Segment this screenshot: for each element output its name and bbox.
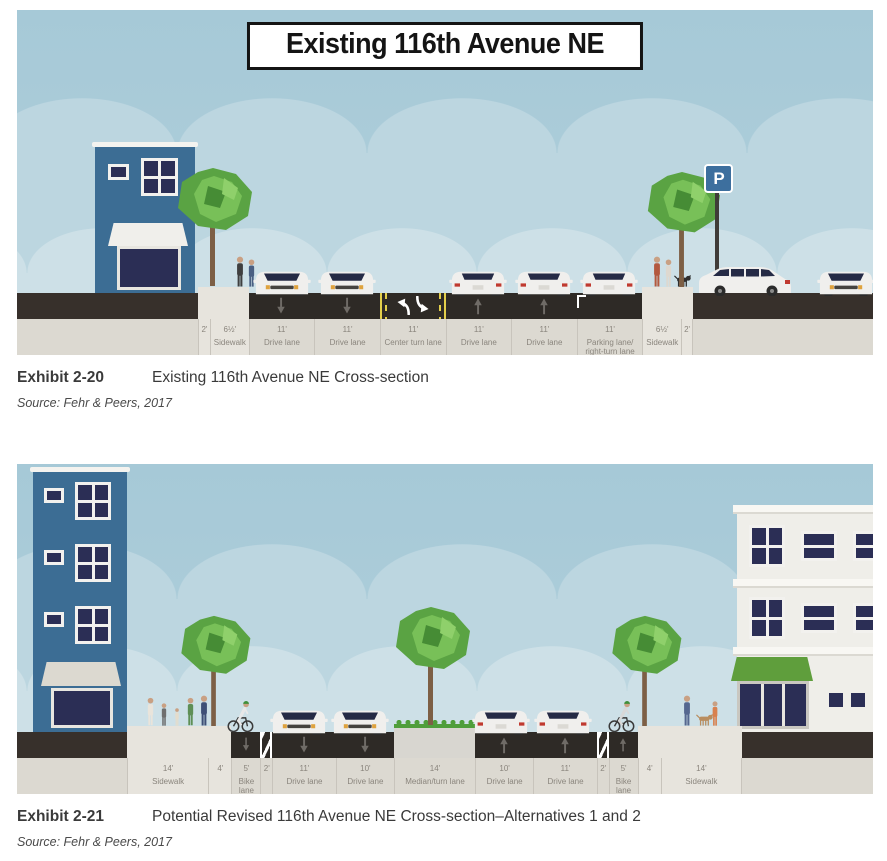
lane-direction-arrow-icon	[298, 736, 310, 754]
lane-buffer: 2'	[681, 287, 693, 355]
lane-surface	[446, 293, 512, 319]
lane-surface	[642, 293, 681, 319]
lane-buffer: 2'	[198, 287, 210, 355]
storefront-window	[737, 681, 809, 729]
lane-drive-lane: 10'Drive lane	[475, 726, 533, 794]
source-note: Source: Fehr & Peers, 2017	[17, 835, 873, 849]
lane-bike-lane: 5'Bike lane	[231, 726, 260, 794]
lane-direction-arrow-icon	[341, 297, 353, 315]
seated-person	[159, 703, 169, 726]
lane-label: 11'Drive lane	[272, 758, 336, 794]
lane-drive-lane: 11'Drive lane	[533, 726, 597, 794]
lane-direction-arrow-icon	[472, 297, 484, 315]
window	[801, 531, 837, 561]
lane-label: 2'	[260, 758, 272, 794]
lane-direction-arrow-icon	[240, 737, 252, 752]
building-roof	[30, 467, 130, 472]
lane-label: 11'Drive lane	[533, 758, 597, 794]
pedestrian	[145, 697, 156, 726]
window	[108, 164, 129, 180]
lane-label: 2'	[597, 758, 609, 794]
exhibit-label: Exhibit 2-21	[17, 808, 152, 826]
lane-label: 5'Bike lane	[231, 758, 260, 794]
lane-surface	[336, 732, 394, 758]
lane-center-turn-lane: 11'Center turn lane	[380, 287, 446, 355]
ground-right	[742, 726, 873, 794]
exhibit-caption: Exhibit 2-21 Potential Revised 116th Ave…	[17, 808, 873, 826]
lane-parking-lane-right-turn-lane: 11'Parking lane/ right-turn lane	[577, 287, 643, 355]
car-front-view	[817, 269, 873, 296]
ground-left	[17, 287, 198, 355]
cyclist	[226, 699, 254, 733]
lane-surface	[597, 732, 609, 758]
lane-drive-lane: 11'Drive lane	[446, 287, 512, 355]
lane-surface	[210, 293, 249, 319]
lane-sidewalk: 14'Sidewalk	[661, 726, 742, 794]
banner-text: Existing 116th Avenue NE	[286, 28, 604, 61]
window	[829, 693, 843, 707]
lane-label: 5'Bike lane	[609, 758, 638, 794]
lane-surface	[260, 732, 272, 758]
car-side-view	[697, 264, 793, 296]
car-rear-view	[472, 708, 530, 735]
lane-surface	[208, 732, 231, 758]
pedestrian	[185, 697, 196, 726]
lane-label: 2'	[198, 319, 210, 355]
lane-surface	[638, 732, 661, 758]
existing-cross-section-diagram: Existing 116th Avenue NE P	[17, 10, 873, 355]
lane-buffer: 4'	[638, 726, 661, 794]
lane-label: 14'Median/turn lane	[394, 758, 475, 794]
window	[75, 606, 111, 644]
window	[44, 612, 64, 627]
window	[749, 525, 785, 567]
pedestrian	[681, 695, 693, 726]
parked-car	[580, 269, 638, 296]
lane-surface	[511, 293, 577, 319]
exhibit-label: Exhibit 2-20	[17, 369, 152, 387]
lane-drive-lane: 11'Drive lane	[249, 287, 315, 355]
window	[749, 597, 785, 639]
lane-label: 6½'Sidewalk	[210, 319, 249, 355]
lane-drive-lane: 11'Drive lane	[511, 287, 577, 355]
pedestrian	[198, 695, 210, 726]
lane-sidewalk: 6½'Sidewalk	[642, 287, 681, 355]
lane-buffer: 2'	[597, 726, 609, 794]
lane-surface	[198, 293, 210, 319]
median-tree	[386, 600, 476, 730]
window	[44, 488, 64, 503]
lane-direction-arrow-icon	[498, 736, 510, 754]
window	[851, 693, 865, 707]
lane-surface	[249, 293, 315, 319]
lane-surface	[533, 732, 597, 758]
lane-direction-arrow-icon	[359, 736, 371, 754]
cross-section-ground: 2'6½'Sidewalk11'Drive lane11'Drive lane1…	[17, 287, 873, 355]
lane-label: 11'Parking lane/ right-turn lane	[577, 319, 643, 355]
lane-label: 11'Drive lane	[314, 319, 380, 355]
building-left	[33, 472, 127, 732]
lane-surface	[127, 732, 208, 758]
lane-sidewalk: 6½'Sidewalk	[210, 287, 249, 355]
lane-label: 11'Drive lane	[446, 319, 512, 355]
window	[75, 544, 111, 582]
car-rear-view	[515, 269, 573, 296]
ground-right	[693, 287, 873, 355]
lane-label: 14'Sidewalk	[661, 758, 742, 794]
lane-surface	[609, 732, 638, 758]
lane-row: 2'6½'Sidewalk11'Drive lane11'Drive lane1…	[198, 287, 693, 355]
child	[173, 708, 181, 726]
lane-sidewalk: 14'Sidewalk	[127, 726, 208, 794]
window	[853, 531, 873, 561]
lane-drive-lane: 10'Drive lane	[336, 726, 394, 794]
lane-surface	[314, 293, 380, 319]
lane-label: 2'	[681, 319, 693, 355]
cyclist	[607, 699, 635, 733]
exhibit-title: Potential Revised 116th Avenue NE Cross-…	[152, 808, 641, 826]
lane-direction-arrow-icon	[538, 297, 550, 315]
cornice	[733, 505, 873, 514]
lane-direction-arrow-icon	[617, 737, 629, 752]
car-front-view	[270, 708, 328, 735]
lane-row: 14'Sidewalk4'5'Bike lane2'11'Drive lane1…	[127, 726, 742, 794]
lane-label: 10'Drive lane	[336, 758, 394, 794]
exhibit-caption: Exhibit 2-20 Existing 116th Avenue NE Cr…	[17, 369, 873, 387]
window	[44, 550, 64, 565]
lane-label: 10'Drive lane	[475, 758, 533, 794]
lane-label: 4'	[638, 758, 661, 794]
building-roof	[92, 142, 198, 147]
source-note: Source: Fehr & Peers, 2017	[17, 396, 873, 410]
lane-label: 11'Center turn lane	[380, 319, 446, 355]
lane-median-turn-lane: 14'Median/turn lane	[394, 726, 475, 794]
car-rear-view	[449, 269, 507, 296]
lane-buffer: 2'	[260, 726, 272, 794]
lane-bike-lane: 5'Bike lane	[609, 726, 638, 794]
diagram-title-banner: Existing 116th Avenue NE	[247, 22, 643, 70]
report-page: Existing 116th Avenue NE P	[0, 0, 887, 849]
car-rear-view	[534, 708, 592, 735]
lane-surface	[272, 732, 336, 758]
lane-drive-lane: 11'Drive lane	[272, 726, 336, 794]
lane-surface	[231, 732, 260, 758]
awning	[731, 657, 813, 681]
parking-sign-icon: P	[704, 164, 733, 193]
cornice	[733, 647, 873, 656]
lane-surface	[577, 293, 643, 319]
cross-section-ground: 14'Sidewalk4'5'Bike lane2'11'Drive lane1…	[17, 726, 873, 794]
lane-surface	[475, 732, 533, 758]
revised-cross-section-diagram: 14'Sidewalk4'5'Bike lane2'11'Drive lane1…	[17, 464, 873, 794]
car-front-view	[331, 708, 389, 735]
lane-direction-arrow-icon	[559, 736, 571, 754]
lane-label: 14'Sidewalk	[127, 758, 208, 794]
storefront-window	[51, 688, 113, 728]
lane-label: 6½'Sidewalk	[642, 319, 681, 355]
lane-label: 11'Drive lane	[511, 319, 577, 355]
lane-surface	[661, 732, 742, 758]
window	[75, 482, 111, 520]
ground-left	[17, 726, 127, 794]
lane-direction-arrow-icon	[275, 297, 287, 315]
awning	[41, 662, 121, 686]
cornice	[733, 579, 873, 588]
lane-label: 4'	[208, 758, 231, 794]
lane-surface	[681, 293, 693, 319]
car-front-view	[253, 269, 311, 296]
exhibit-title: Existing 116th Avenue NE Cross-section	[152, 369, 429, 387]
window	[801, 603, 837, 633]
lane-label: 11'Drive lane	[249, 319, 315, 355]
lane-drive-lane: 11'Drive lane	[314, 287, 380, 355]
two-way-turn-arrows-icon	[394, 296, 432, 315]
lane-buffer: 4'	[208, 726, 231, 794]
pedestrian	[234, 256, 246, 287]
child	[710, 701, 720, 726]
lane-surface	[380, 293, 446, 319]
car-front-view	[318, 269, 376, 296]
building-right	[737, 505, 873, 732]
window	[853, 603, 873, 633]
